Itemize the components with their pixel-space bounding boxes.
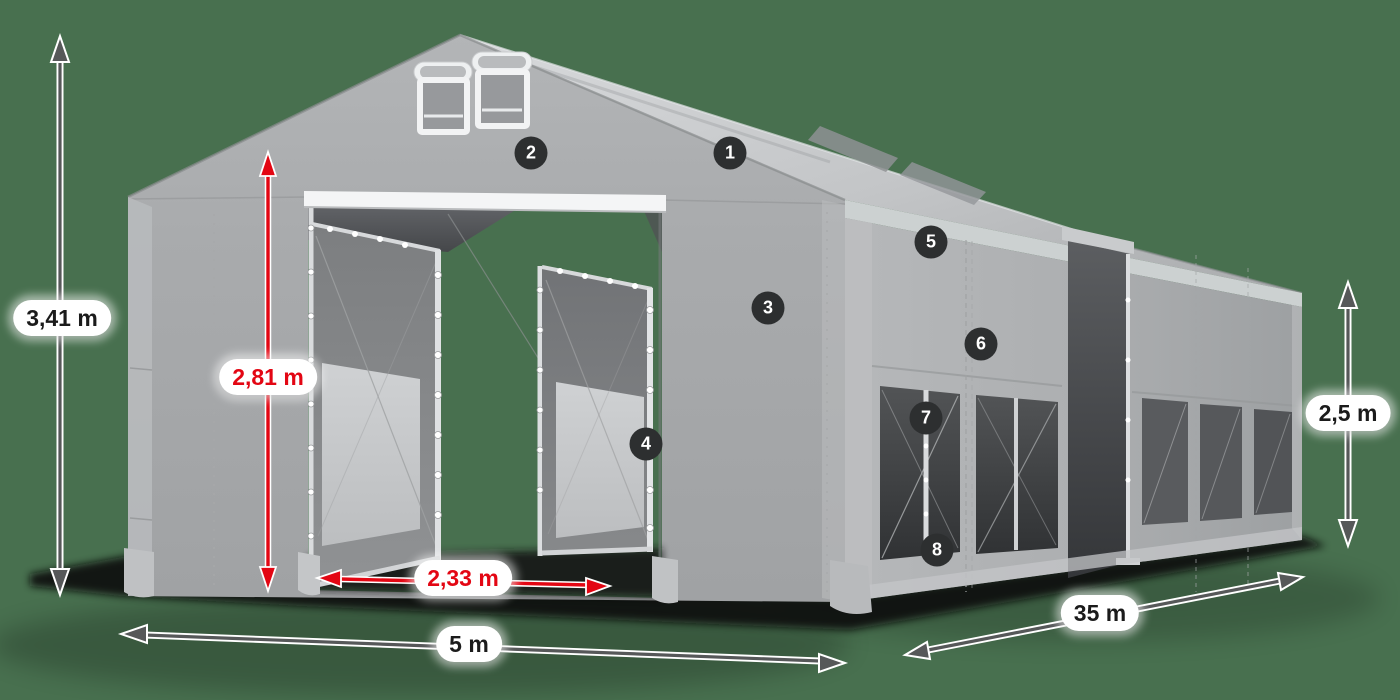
callout-badge-1[interactable]: 1 [714,137,747,170]
corner-sleeve [128,197,152,596]
callout-badge-4[interactable]: 4 [630,428,663,461]
vent-window [420,80,467,132]
label-width: 5 m [436,626,502,662]
callout-badge-2[interactable]: 2 [515,137,548,170]
door-window [322,363,420,546]
corner-sleeve [845,218,872,602]
door-window [556,382,644,538]
tent-dimension-diagram: 3,41 m 2,81 m 2,33 m 5 m 35 m 2,5 m 1 2 … [0,0,1400,700]
side-entrance [1062,226,1140,578]
callout-badge-7[interactable]: 7 [910,402,943,435]
callout-badge-5[interactable]: 5 [915,226,948,259]
right-door-leaf [537,266,654,556]
label-entrance-width: 2,33 m [414,560,512,596]
side-window-opening [976,395,1058,554]
callout-badge-3[interactable]: 3 [752,292,785,325]
vent-window [478,72,527,126]
label-total-height: 3,41 m [13,300,111,336]
label-entrance-height: 2,81 m [219,359,317,395]
tent-illustration [0,0,1400,700]
front-entrance [304,191,666,598]
callout-badge-8[interactable]: 8 [921,534,954,567]
label-side-height: 2,5 m [1306,395,1391,431]
label-length: 35 m [1061,595,1139,631]
left-door-leaf [312,222,442,588]
callout-badge-6[interactable]: 6 [965,328,998,361]
